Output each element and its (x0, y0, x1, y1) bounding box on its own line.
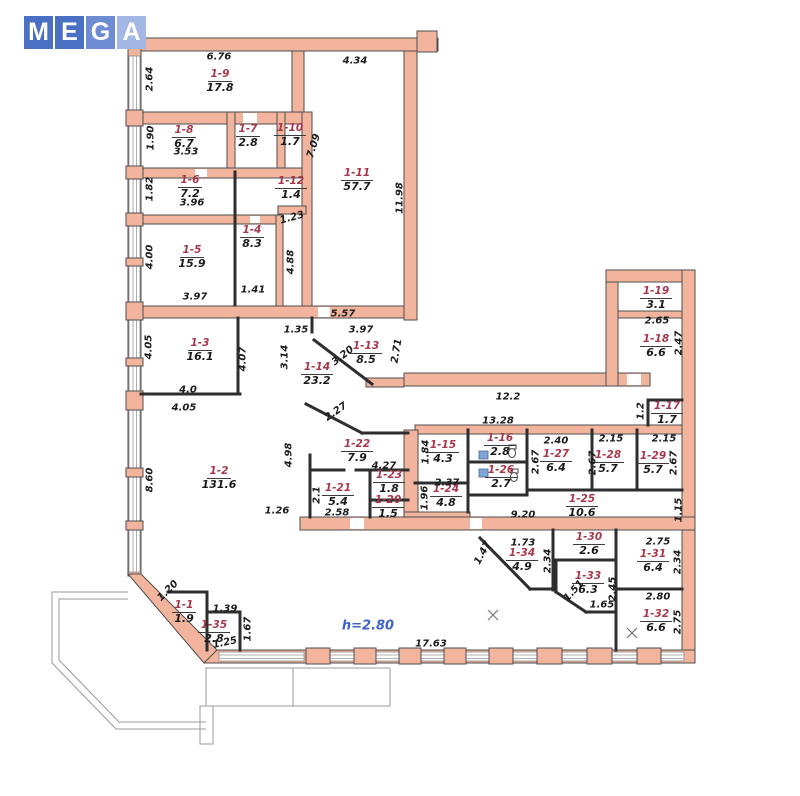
room-label-1-17: 1-171.7 (641, 401, 693, 426)
room-area: 6.4 (627, 562, 679, 574)
dim-label: 1.20 (155, 578, 180, 603)
room-area: 2.8 (188, 633, 240, 645)
room-area: 6.7 (158, 138, 210, 150)
dim-label: 2.64 (145, 67, 156, 92)
dim-label: 2.40 (544, 436, 569, 447)
dim-label: 1.96 (420, 486, 431, 511)
room-area: 3.1 (630, 299, 682, 311)
room-area: 131.6 (193, 479, 245, 491)
room-number: 1-21 (322, 483, 354, 496)
dim-label: 3.14 (280, 345, 291, 370)
room-number: 1-14 (301, 362, 333, 375)
room-label-1-11: 1-1157.7 (331, 168, 383, 193)
dim-label: 4.27 (372, 461, 397, 472)
dim-label: 11.98 (395, 182, 406, 214)
dim-label: 4.34 (343, 56, 368, 67)
room-area: 2.8 (222, 137, 274, 149)
room-label-1-19: 1-193.1 (630, 286, 682, 311)
dim-label: 4.0 (179, 385, 197, 396)
room-area: 6.4 (530, 462, 582, 474)
dim-label: 1.35 (284, 325, 309, 336)
room-area: 5.4 (312, 496, 364, 508)
dim-label: 5.57 (331, 309, 356, 320)
room-area: 4.3 (417, 453, 469, 465)
room-area: 1.7 (641, 414, 693, 426)
room-area: 8.5 (340, 354, 392, 366)
dim-label: 8.60 (145, 468, 156, 493)
room-number: 1-34 (506, 548, 538, 561)
room-label-1-32: 1-326.6 (630, 609, 682, 634)
dim-label: 2.27 (323, 400, 350, 423)
room-label-1-28: 1-285.7 (582, 450, 634, 475)
dim-label: 1.25 (212, 635, 238, 651)
room-label-1-1: 1-11.9 (158, 600, 210, 625)
dim-label: 6.76 (207, 52, 232, 63)
room-number: 1-29 (637, 451, 669, 464)
room-number: 1-35 (198, 620, 230, 633)
room-area: 4.8 (420, 497, 472, 509)
room-label-1-14: 1-1423.2 (291, 362, 343, 387)
room-area: 2.8 (474, 446, 526, 458)
dim-label: 13.28 (482, 416, 514, 427)
room-number: 1-10 (274, 123, 306, 136)
dim-label: 2.71 (389, 338, 404, 364)
room-label-1-6: 1-67.2 (164, 175, 216, 200)
dim-label: 1.84 (421, 440, 432, 465)
room-area: 10.6 (556, 507, 608, 519)
dim-label: 3.97 (349, 325, 374, 336)
room-area: 16.1 (174, 351, 226, 363)
room-label-1-26: 1-262.7 (475, 465, 527, 490)
dim-label: 2.45 (608, 577, 619, 602)
room-label-1-24: 1-244.8 (420, 484, 472, 509)
room-area: 1.9 (158, 613, 210, 625)
dim-label: 2.1 (312, 486, 323, 504)
dim-label: 1.73 (511, 538, 536, 549)
room-number: 1-16 (484, 433, 516, 446)
room-area: 23.2 (291, 375, 343, 387)
room-label-1-2: 1-2131.6 (193, 466, 245, 491)
room-label-1-30: 1-302.6 (563, 532, 615, 557)
room-area: 7.2 (164, 188, 216, 200)
dim-label: 4.05 (144, 335, 155, 360)
room-number: 1-3 (188, 338, 213, 351)
dim-label: 2.37 (435, 478, 460, 489)
room-number: 1-23 (373, 470, 405, 483)
room-area: 2.6 (563, 545, 615, 557)
dim-label: 1.51 (562, 578, 587, 604)
dim-label: 12.2 (496, 392, 521, 403)
dim-label: 1.26 (265, 506, 290, 517)
dim-label: 1.41 (241, 285, 266, 296)
room-number: 1-7 (236, 124, 261, 137)
room-area: 7.9 (331, 452, 383, 464)
dim-label: 2.75 (646, 537, 671, 548)
room-number: 1-9 (208, 69, 233, 82)
room-label-1-13: 1-138.5 (340, 341, 392, 366)
room-number: 1-31 (637, 549, 669, 562)
room-number: 1-19 (640, 286, 672, 299)
room-label-1-9: 1-917.8 (194, 69, 246, 94)
room-label-1-18: 1-186.6 (630, 334, 682, 359)
room-area: 5.7 (582, 463, 634, 475)
room-number: 1-32 (640, 609, 672, 622)
dim-label: 2.47 (674, 331, 685, 356)
dim-label: 2.75 (673, 610, 684, 635)
dim-label: 2.15 (599, 434, 624, 445)
room-area: 5.7 (627, 464, 679, 476)
room-label-1-34: 1-344.9 (496, 548, 548, 573)
room-label-1-23: 1-231.8 (363, 470, 415, 495)
room-number: 1-11 (341, 168, 373, 181)
dim-label: 2.15 (652, 434, 677, 445)
dim-label: 4.07 (238, 347, 249, 372)
dim-label: 4.98 (284, 443, 295, 468)
room-label-1-8: 1-86.7 (158, 125, 210, 150)
room-label-1-22: 1-227.9 (331, 439, 383, 464)
dim-label: 2.67 (588, 451, 599, 476)
room-number: 1-20 (372, 495, 404, 508)
room-area: 1.5 (362, 508, 414, 520)
room-number: 1-25 (566, 494, 598, 507)
dim-label: 4.00 (145, 245, 156, 270)
ceiling-height-label: h=2.80 (342, 619, 394, 634)
room-label-1-20: 1-201.5 (362, 495, 414, 520)
room-label-1-27: 1-276.4 (530, 449, 582, 474)
room-area: 57.7 (331, 181, 383, 193)
dim-label: 2.58 (325, 508, 350, 519)
room-number: 1-33 (572, 571, 604, 584)
room-number: 1-27 (540, 449, 572, 462)
dim-label: 3.96 (180, 198, 205, 209)
room-number: 1-2 (207, 466, 232, 479)
room-area: 6.3 (562, 584, 614, 596)
dim-label: 2.65 (645, 316, 670, 327)
dim-label: 17.63 (415, 639, 447, 650)
dim-label: 4.05 (172, 403, 197, 414)
room-label-1-5: 1-515.9 (166, 245, 218, 270)
dim-label: 1.15 (674, 498, 685, 523)
room-label-1-29: 1-295.7 (627, 451, 679, 476)
room-number: 1-6 (178, 175, 203, 188)
room-area: 17.8 (194, 82, 246, 94)
room-number: 1-18 (640, 334, 672, 347)
room-number: 1-22 (341, 439, 373, 452)
room-label-1-33: 1-336.3 (562, 571, 614, 596)
room-number: 1-8 (172, 125, 197, 138)
dim-label: 3.53 (174, 147, 199, 158)
room-label-1-15: 1-154.3 (417, 440, 469, 465)
room-area: 1.4 (265, 189, 317, 201)
dim-label: 4.88 (286, 250, 297, 275)
room-number: 1-5 (180, 245, 205, 258)
room-area: 6.6 (630, 347, 682, 359)
room-number: 1-15 (427, 440, 459, 453)
room-label-1-3: 1-316.1 (174, 338, 226, 363)
labels-layer: 1-11.91-2131.61-316.11-48.31-515.91-67.2… (0, 0, 800, 796)
room-area: 8.3 (226, 238, 278, 250)
room-label-1-35: 1-352.8 (188, 620, 240, 645)
room-number: 1-17 (651, 401, 683, 414)
room-area: 4.9 (496, 561, 548, 573)
room-label-1-4: 1-48.3 (226, 225, 278, 250)
room-number: 1-12 (275, 176, 307, 189)
dim-label: 2.34 (543, 549, 554, 574)
dim-label: 1.39 (213, 604, 238, 615)
room-label-1-21: 1-215.4 (312, 483, 364, 508)
dim-label: 3.20 (330, 344, 356, 368)
dim-label: 3.97 (183, 292, 208, 303)
dim-label: 1.47 (472, 540, 493, 567)
room-label-1-10: 1-101.7 (264, 123, 316, 148)
dim-label: 2.80 (646, 592, 671, 603)
room-number: 1-13 (350, 341, 382, 354)
floorplan: MEGA 1-11.91-2131.61-316.11-48.31-515.91… (0, 0, 800, 796)
room-area: 2.7 (475, 478, 527, 490)
room-label-1-31: 1-316.4 (627, 549, 679, 574)
dim-label: 1.2 (636, 402, 647, 420)
room-area: 1.7 (264, 136, 316, 148)
dim-label: 9.20 (511, 510, 536, 521)
room-number: 1-4 (240, 225, 265, 238)
room-number: 1-30 (573, 532, 605, 545)
room-label-1-12: 1-121.4 (265, 176, 317, 201)
dim-label: 1.82 (145, 177, 156, 202)
room-number: 1-1 (172, 600, 197, 613)
room-area: 15.9 (166, 258, 218, 270)
room-area: 1.8 (363, 483, 415, 495)
dim-label: 1.90 (146, 126, 157, 151)
room-number: 1-24 (430, 484, 462, 497)
room-label-1-25: 1-2510.6 (556, 494, 608, 519)
room-label-1-7: 1-72.8 (222, 124, 274, 149)
room-number: 1-26 (485, 465, 517, 478)
dim-label: 1.67 (243, 617, 254, 642)
room-area: 6.6 (630, 622, 682, 634)
room-number: 1-28 (592, 450, 624, 463)
dim-label: 2.67 (669, 451, 680, 476)
dim-label: 1.65 (590, 600, 615, 611)
dim-label: 2.34 (673, 550, 684, 575)
room-label-1-16: 1-162.8 (474, 433, 526, 458)
dim-label: 7.09 (305, 133, 323, 160)
dim-label: 2.67 (531, 450, 542, 475)
dim-label: 1.23 (279, 209, 306, 226)
